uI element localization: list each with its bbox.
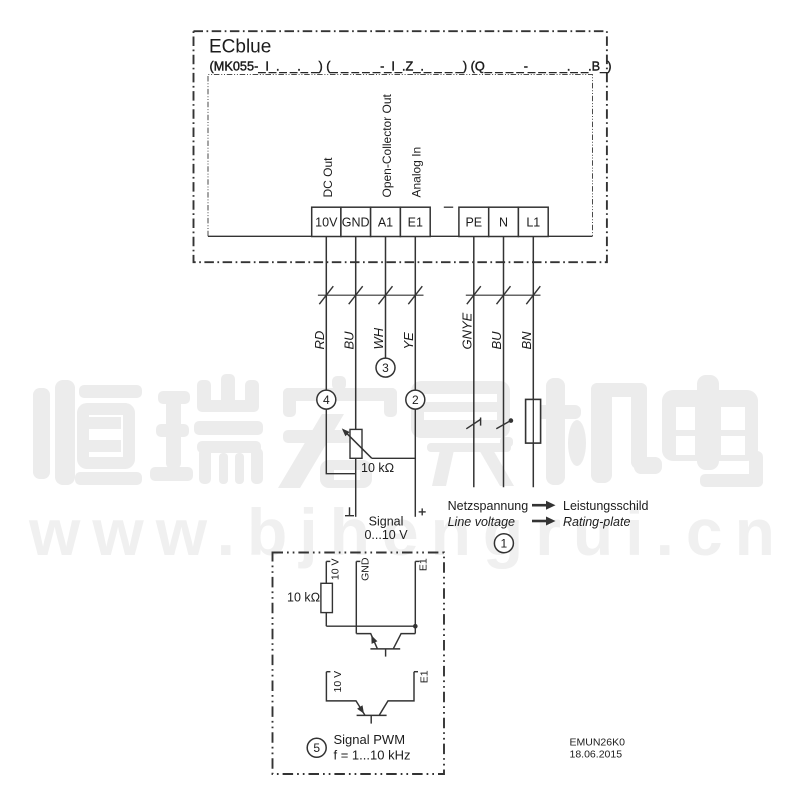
svg-text:10 V: 10 V [332,671,344,693]
svg-text:GNYE: GNYE [460,312,475,349]
svg-text:WH: WH [371,327,386,349]
svg-text:Netzspannung: Netzspannung [448,499,529,513]
svg-text:Analog In: Analog In [410,147,424,198]
svg-text:DC Out: DC Out [321,157,335,198]
svg-text:BU: BU [489,331,504,350]
svg-text:10 kΩ: 10 kΩ [361,461,394,475]
svg-text:4: 4 [323,393,330,407]
svg-text:f = 1...10 kHz: f = 1...10 kHz [334,747,411,762]
svg-text:E1: E1 [408,216,423,230]
svg-text:PE: PE [465,216,482,230]
svg-text:5: 5 [313,741,320,755]
svg-text:E1: E1 [419,670,431,683]
svg-text:L1: L1 [526,216,540,230]
svg-text:EMUN26K0: EMUN26K0 [570,736,626,748]
svg-text:GND: GND [342,216,370,230]
svg-text:E1: E1 [417,558,429,571]
svg-text:10 kΩ: 10 kΩ [287,591,320,605]
svg-text:10 V: 10 V [330,558,342,580]
svg-text:0...10 V: 0...10 V [364,528,408,542]
svg-text:Line voltage: Line voltage [448,515,515,529]
svg-text:18.06.2015: 18.06.2015 [570,749,623,761]
svg-text:GND: GND [359,557,371,581]
svg-text:A1: A1 [378,216,393,230]
svg-text:Signal: Signal [369,515,404,529]
svg-text:Leistungsschild: Leistungsschild [563,499,649,513]
svg-text:YE: YE [401,332,416,350]
svg-text:1: 1 [501,537,508,551]
svg-text:N: N [499,216,508,230]
svg-text:2: 2 [412,393,419,407]
svg-text:10V: 10V [315,216,338,230]
svg-text:Rating-plate: Rating-plate [563,515,630,529]
svg-text:(MK055-_I_._ _._ _) (_ _ _ _ _: (MK055-_I_._ _._ _) (_ _ _ _ _-_I_.Z_._ … [210,59,612,74]
svg-text:BU: BU [341,331,356,350]
svg-text:BN: BN [519,331,534,350]
svg-text:RD: RD [312,331,327,350]
svg-text:Signal PWM: Signal PWM [334,732,406,747]
svg-text:Open-Collector Out: Open-Collector Out [380,93,394,197]
svg-text:ECblue: ECblue [209,37,271,58]
svg-text:3: 3 [382,361,389,375]
